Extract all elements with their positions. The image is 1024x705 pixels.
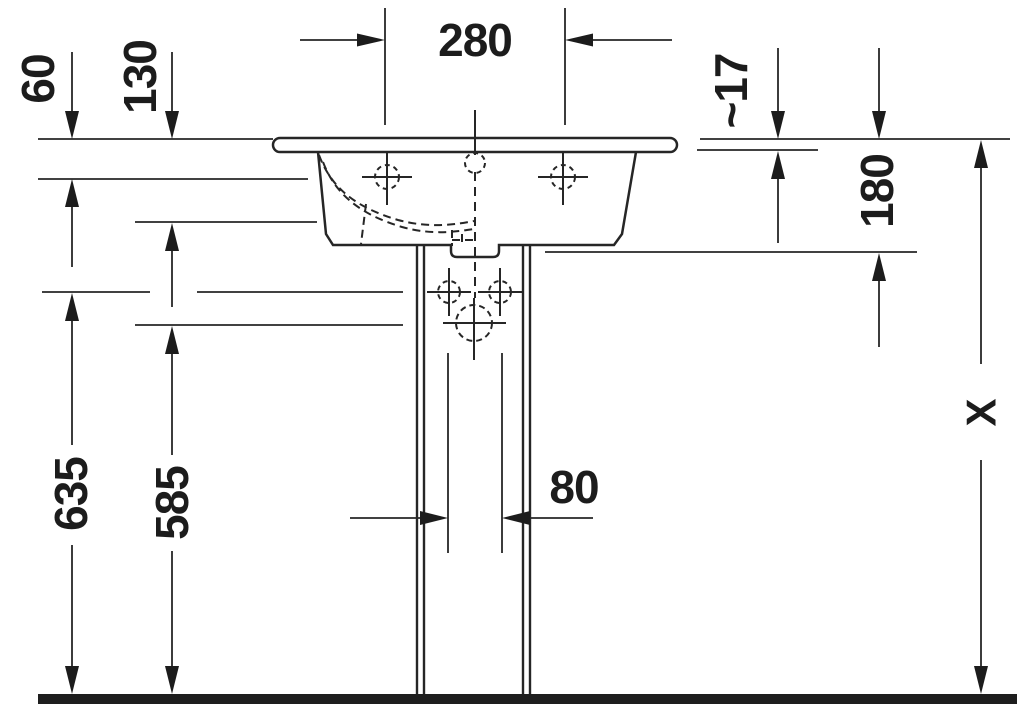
arrow-up-icon: [974, 140, 988, 168]
dim-60: [65, 52, 79, 267]
dim-x-label: X: [958, 399, 1005, 427]
dim-17-label: ~17: [705, 53, 757, 128]
arrow-up-icon: [165, 223, 179, 251]
basin: [273, 110, 677, 360]
washbasin-dimension-diagram: 280 60 130 ~17 180 635: [0, 0, 1024, 705]
dim-80: [350, 353, 593, 553]
arrow-down-icon: [771, 111, 785, 139]
technical-drawing-canvas: 280 60 130 ~17 180 635: [0, 0, 1024, 705]
arrow-left-icon: [565, 34, 593, 47]
dim-635-label: 635: [45, 457, 97, 531]
arrow-right-icon: [357, 34, 385, 47]
dim-280-label: 280: [438, 14, 512, 66]
arrow-down-icon: [974, 666, 988, 694]
floor-line: [38, 694, 1017, 704]
dim-60-label: 60: [12, 54, 64, 103]
arrow-up-icon: [872, 253, 886, 281]
arrow-up-icon: [65, 179, 79, 207]
dim-80-label: 80: [549, 461, 598, 513]
arrow-up-icon: [771, 151, 785, 179]
dim-585-label: 585: [146, 466, 198, 540]
arrow-down-icon: [65, 111, 79, 139]
waste-outlet-icon: [443, 298, 506, 360]
arrow-up-icon: [65, 293, 79, 321]
arrow-right-icon: [420, 511, 448, 525]
arrow-down-icon: [65, 666, 79, 694]
dim-130-label: 130: [114, 40, 166, 114]
arrow-down-icon: [165, 111, 179, 139]
dim-180-label: 180: [851, 154, 903, 228]
arrow-down-icon: [872, 111, 886, 139]
arrow-left-icon: [502, 511, 530, 525]
arrow-up-icon: [165, 326, 179, 354]
arrow-down-icon: [165, 666, 179, 694]
dim-17: [771, 48, 785, 243]
